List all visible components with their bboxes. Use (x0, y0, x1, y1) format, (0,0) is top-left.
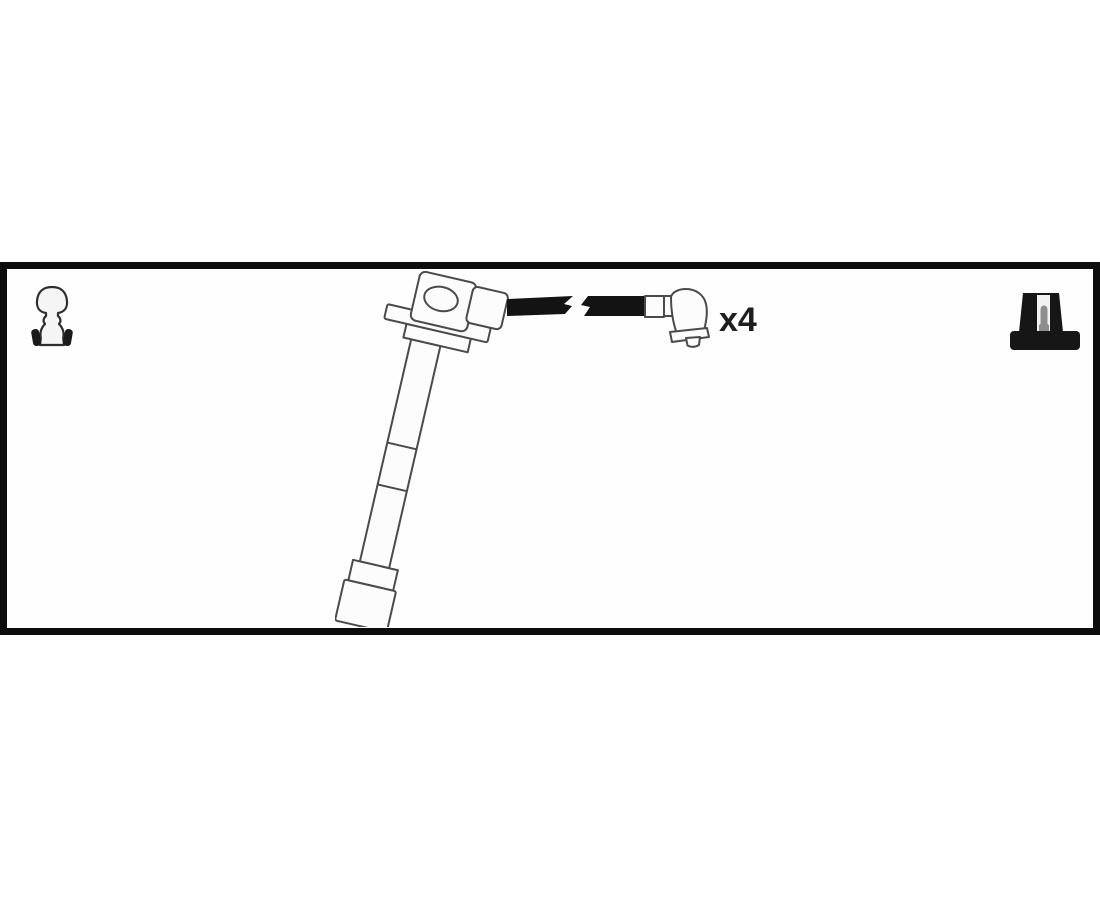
cable-segment-1 (507, 296, 573, 316)
coil-boot-silhouette-icon (1010, 291, 1082, 353)
product-image-panel: x4 (0, 262, 1100, 635)
coil-assembly (335, 271, 510, 627)
connector-body (37, 287, 67, 345)
coil-shaft (360, 339, 441, 568)
boot-terminal-tab (686, 337, 700, 347)
page: { "panel": { "quantity_label": "x4", "bo… (0, 0, 1100, 900)
cable-segment-2 (581, 296, 645, 316)
spark-plug-connector-icon (30, 283, 74, 353)
boot-silhouette-base (1010, 331, 1080, 350)
quantity-label: x4 (719, 303, 757, 337)
boot-ferrule (645, 296, 664, 317)
elbow-boot (671, 289, 707, 334)
coil-nipple (465, 286, 508, 330)
product-image: x4 (0, 0, 1100, 900)
ignition-coil-lead-illustration (335, 271, 775, 627)
